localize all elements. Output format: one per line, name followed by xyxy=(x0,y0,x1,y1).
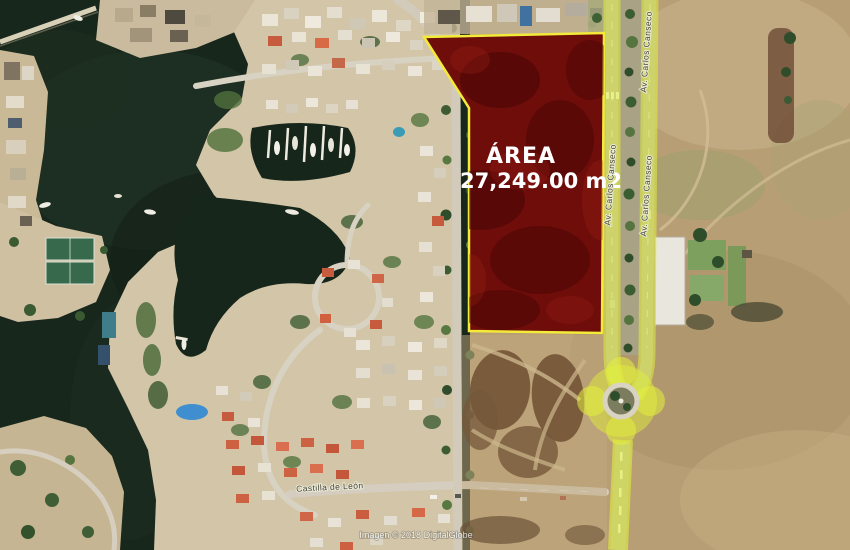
parcel-area-title: ÁREA xyxy=(486,143,556,169)
map-canvas: ÁREA 27,249.00 m2 Av. Carlos Canseco Av.… xyxy=(0,0,850,550)
parcel-area-value: 27,249.00 m2 xyxy=(460,169,622,193)
imagery-attribution: Imagen © 2018 DigitalGlobe xyxy=(359,530,472,540)
satellite-map: ÁREA 27,249.00 m2 Av. Carlos Canseco Av.… xyxy=(0,0,850,550)
